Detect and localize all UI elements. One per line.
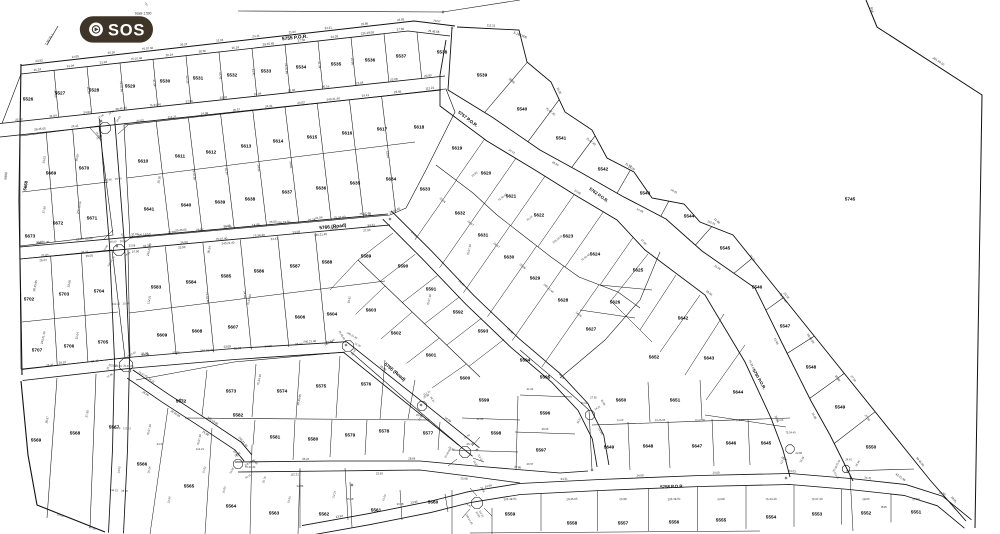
svg-text:5673: 5673 (25, 234, 36, 239)
svg-text:5998: 5998 (4, 172, 9, 180)
svg-text:23.08: 23.08 (223, 224, 231, 229)
svg-text:5624: 5624 (590, 252, 601, 257)
svg-text:5586: 5586 (254, 269, 265, 274)
svg-text:28.66: 28.66 (542, 427, 549, 431)
svg-text:5652: 5652 (649, 355, 660, 360)
svg-text:112.21: 112.21 (290, 472, 299, 476)
svg-text:5705: 5705 (98, 340, 109, 345)
svg-text:5549: 5549 (835, 405, 846, 410)
svg-text:23.08: 23.08 (223, 344, 231, 349)
svg-text:5593: 5593 (478, 329, 489, 334)
svg-text:5670: 5670 (79, 166, 90, 171)
svg-text:23.93: 23.93 (178, 245, 186, 250)
svg-text:5645: 5645 (761, 441, 772, 446)
svg-text:5618: 5618 (414, 125, 425, 130)
svg-text:75.34.40: 75.34.40 (785, 430, 796, 434)
svg-text:24.41: 24.41 (361, 93, 369, 98)
svg-text:5603: 5603 (366, 308, 377, 313)
svg-text:23.08: 23.08 (397, 502, 404, 506)
svg-text:5584: 5584 (186, 280, 197, 285)
svg-text:SOS: SOS (108, 21, 145, 39)
svg-text:5545: 5545 (720, 246, 731, 251)
svg-text:27.50: 27.50 (363, 228, 371, 233)
svg-text:5635: 5635 (350, 181, 361, 186)
svg-text:31.04: 31.04 (66, 63, 74, 68)
svg-text:23.93: 23.93 (219, 95, 227, 100)
svg-text:5600: 5600 (460, 376, 471, 381)
svg-text:23.93: 23.93 (15, 117, 23, 122)
svg-text:5529: 5529 (125, 84, 136, 89)
svg-text:226.19.50: 226.19.50 (667, 497, 680, 501)
svg-text:5581: 5581 (270, 435, 281, 440)
svg-text:5606: 5606 (295, 315, 306, 320)
svg-text:25.00: 25.00 (269, 219, 277, 224)
svg-text:5573: 5573 (226, 389, 237, 394)
svg-text:34.31: 34.31 (111, 488, 118, 492)
svg-text:23.08: 23.08 (717, 497, 725, 501)
svg-text:22.86: 22.86 (185, 99, 193, 104)
svg-text:14.09: 14.09 (71, 54, 79, 59)
svg-text:26.24: 26.24 (76, 237, 84, 242)
svg-text:5608: 5608 (192, 329, 203, 334)
svg-text:5541: 5541 (556, 136, 567, 141)
svg-text:5578: 5578 (379, 429, 390, 434)
svg-text:5528: 5528 (89, 88, 100, 93)
svg-text:24.03: 24.03 (136, 118, 144, 123)
svg-text:31.04: 31.04 (288, 88, 296, 93)
svg-text:21.04: 21.04 (527, 387, 534, 391)
svg-text:5607: 5607 (228, 325, 239, 330)
svg-text:14.09: 14.09 (200, 111, 208, 116)
svg-text:26.24: 26.24 (120, 239, 128, 244)
svg-text:5547: 5547 (780, 324, 791, 329)
svg-text:5568: 5568 (70, 431, 81, 436)
svg-text:28.66: 28.66 (198, 49, 206, 54)
svg-text:21.04: 21.04 (288, 30, 296, 35)
svg-text:5563: 5563 (269, 511, 280, 516)
svg-text:27.50: 27.50 (590, 395, 597, 399)
svg-text:31.04: 31.04 (99, 60, 107, 65)
svg-text:23.93: 23.93 (424, 73, 432, 78)
svg-text:5636: 5636 (316, 186, 327, 191)
svg-text:5537: 5537 (396, 54, 407, 59)
svg-text:5758 P.O.R.: 5758 P.O.R. (660, 484, 684, 490)
svg-text:5647: 5647 (692, 444, 703, 449)
svg-text:75.07.40: 75.07.40 (811, 497, 823, 501)
svg-text:5566: 5566 (137, 462, 148, 467)
svg-text:23.93: 23.93 (85, 236, 93, 241)
svg-text:5613: 5613 (241, 144, 252, 149)
svg-text:26.24: 26.24 (180, 42, 188, 47)
svg-text:5536: 5536 (365, 58, 376, 63)
svg-text:5530: 5530 (160, 79, 171, 84)
svg-text:5558: 5558 (567, 521, 578, 526)
svg-text:34.31: 34.31 (560, 477, 568, 481)
svg-text:5704: 5704 (94, 289, 105, 294)
svg-text:26.24: 26.24 (33, 67, 41, 72)
svg-text:5526: 5526 (23, 97, 34, 102)
svg-text:5642: 5642 (678, 316, 689, 321)
svg-text:21.04: 21.04 (356, 80, 364, 85)
svg-text:25.98: 25.98 (619, 497, 627, 501)
svg-text:14.09: 14.09 (252, 222, 260, 227)
svg-text:31.04: 31.04 (41, 253, 49, 258)
svg-text:5535: 5535 (331, 62, 342, 67)
svg-text:29.45.65: 29.45.65 (566, 497, 578, 501)
svg-text:14.09: 14.09 (712, 471, 720, 475)
svg-text:21.04: 21.04 (477, 417, 484, 421)
svg-text:23.08: 23.08 (129, 243, 136, 247)
svg-text:5595: 5595 (540, 375, 551, 380)
svg-text:5552: 5552 (861, 511, 872, 516)
svg-text:112.21: 112.21 (487, 23, 496, 27)
svg-text:26.24: 26.24 (295, 342, 303, 347)
svg-text:5610: 5610 (138, 159, 149, 164)
svg-text:14.09: 14.09 (636, 473, 644, 477)
svg-text:5650: 5650 (616, 398, 627, 403)
svg-text:5623: 5623 (563, 234, 574, 239)
svg-text:25.00: 25.00 (115, 176, 123, 181)
svg-text:27.50: 27.50 (132, 249, 140, 254)
svg-text:5597: 5597 (536, 448, 547, 453)
svg-text:5601: 5601 (426, 353, 437, 358)
svg-text:24.41: 24.41 (845, 458, 852, 462)
svg-text:5569: 5569 (31, 438, 42, 443)
svg-text:5544: 5544 (684, 214, 695, 219)
svg-text:5671: 5671 (87, 216, 98, 221)
svg-text:26.24: 26.24 (165, 52, 173, 57)
svg-text:5551: 5551 (911, 510, 922, 515)
svg-text:5609: 5609 (157, 333, 168, 338)
svg-text:5582: 5582 (233, 413, 244, 418)
svg-text:24.03: 24.03 (297, 100, 305, 105)
svg-text:23.93: 23.93 (397, 17, 405, 22)
svg-text:25.98: 25.98 (105, 177, 113, 182)
svg-text:5707: 5707 (32, 348, 43, 353)
svg-text:5554: 5554 (766, 515, 777, 520)
svg-text:14.09: 14.09 (114, 426, 121, 430)
svg-text:5580: 5580 (308, 437, 319, 442)
svg-text:24.03: 24.03 (83, 110, 91, 115)
svg-text:25.98: 25.98 (460, 476, 468, 481)
svg-text:24.41: 24.41 (91, 359, 99, 364)
svg-text:25.98: 25.98 (347, 497, 354, 501)
svg-text:5527: 5527 (55, 91, 66, 96)
svg-text:B16: B16 (881, 505, 887, 509)
svg-text:5575: 5575 (316, 384, 327, 389)
svg-text:5534: 5534 (296, 65, 307, 70)
svg-text:26.24: 26.24 (302, 457, 309, 461)
svg-text:5543: 5543 (640, 191, 651, 196)
svg-text:5591: 5591 (426, 287, 437, 292)
svg-text:5706: 5706 (64, 344, 75, 349)
svg-text:26.57: 26.57 (527, 462, 534, 466)
svg-text:112.21: 112.21 (736, 418, 745, 422)
svg-text:5565: 5565 (184, 484, 195, 489)
svg-text:5626: 5626 (610, 300, 621, 305)
svg-text:5559: 5559 (505, 512, 516, 517)
svg-text:14.09: 14.09 (264, 344, 272, 349)
svg-text:5616: 5616 (342, 131, 353, 136)
svg-text:5672: 5672 (53, 221, 64, 226)
svg-text:5598: 5598 (491, 431, 502, 436)
svg-text:26.57: 26.57 (196, 227, 204, 232)
svg-text:5556: 5556 (669, 520, 680, 525)
svg-text:112.21: 112.21 (112, 302, 121, 306)
svg-text:5587: 5587 (290, 264, 301, 269)
svg-text:5630: 5630 (504, 255, 515, 260)
svg-text:28.66: 28.66 (862, 497, 870, 501)
svg-text:5632: 5632 (455, 211, 466, 216)
svg-text:5637: 5637 (282, 190, 293, 195)
svg-text:25.16: 25.16 (322, 84, 330, 89)
svg-text:5564: 5564 (226, 504, 237, 509)
svg-text:5533: 5533 (261, 69, 272, 74)
svg-text:5557: 5557 (618, 521, 629, 526)
svg-text:5702: 5702 (24, 297, 35, 302)
svg-text:23.93: 23.93 (234, 346, 242, 351)
svg-text:23.93: 23.93 (35, 58, 43, 63)
svg-text:23.08: 23.08 (390, 77, 398, 82)
svg-text:5585: 5585 (221, 274, 232, 279)
svg-text:5592: 5592 (453, 310, 464, 315)
svg-text:23.93: 23.93 (376, 472, 383, 476)
svg-text:5633: 5633 (420, 187, 431, 192)
svg-text:5614: 5614 (273, 139, 284, 144)
svg-text:5590: 5590 (398, 264, 409, 269)
svg-text:22.86: 22.86 (514, 465, 522, 470)
svg-text:28.66: 28.66 (121, 489, 128, 493)
svg-text:14.09: 14.09 (617, 418, 624, 422)
svg-text:5531: 5531 (193, 76, 204, 81)
svg-text:31.04: 31.04 (49, 113, 57, 118)
svg-text:5611: 5611 (175, 154, 186, 159)
svg-text:5639: 5639 (215, 200, 226, 205)
svg-text:5542: 5542 (598, 167, 609, 172)
svg-text:226.19.50: 226.19.50 (503, 497, 516, 501)
svg-text:29.45.65: 29.45.65 (123, 364, 134, 368)
svg-text:5561: 5561 (371, 508, 382, 513)
svg-text:5562: 5562 (319, 512, 330, 517)
svg-text:5550: 5550 (866, 445, 877, 450)
svg-text:112.21: 112.21 (196, 447, 205, 451)
svg-text:5583: 5583 (151, 285, 162, 290)
svg-text:25.16: 25.16 (107, 50, 115, 55)
svg-text:31.04: 31.04 (317, 61, 322, 69)
svg-text:22.86: 22.86 (796, 451, 803, 455)
svg-text:5604: 5604 (327, 312, 338, 317)
svg-text:21.04: 21.04 (581, 401, 588, 405)
svg-text:29.45.65: 29.45.65 (655, 418, 666, 422)
svg-text:5627: 5627 (586, 327, 597, 332)
svg-text:25.00: 25.00 (86, 253, 94, 258)
svg-text:5596: 5596 (540, 411, 551, 416)
svg-text:24.41: 24.41 (252, 34, 260, 39)
svg-text:5651: 5651 (670, 398, 681, 403)
svg-text:5589: 5589 (361, 254, 372, 259)
svg-text:27.50: 27.50 (396, 27, 404, 32)
svg-text:5560: 5560 (428, 500, 439, 505)
svg-text:22.86: 22.86 (172, 350, 180, 355)
svg-text:5629: 5629 (530, 276, 541, 281)
svg-text:5539: 5539 (477, 73, 488, 78)
svg-text:34.31: 34.31 (157, 442, 164, 446)
svg-text:24.41: 24.41 (218, 72, 223, 80)
svg-text:25.00: 25.00 (110, 239, 118, 244)
svg-text:Scale 1:500: Scale 1:500 (135, 12, 152, 16)
svg-text:5641: 5641 (144, 207, 155, 212)
svg-text:5621: 5621 (506, 194, 517, 199)
svg-text:5625: 5625 (633, 268, 644, 273)
svg-text:5643: 5643 (704, 356, 715, 361)
svg-text:5631: 5631 (478, 233, 489, 238)
svg-text:5745: 5745 (845, 197, 856, 202)
svg-text:5579: 5579 (345, 433, 356, 438)
svg-text:21.04: 21.04 (115, 364, 122, 368)
svg-text:26.24: 26.24 (39, 258, 47, 263)
svg-text:26.24: 26.24 (231, 45, 239, 50)
svg-text:5615: 5615 (307, 135, 318, 140)
svg-text:24.41: 24.41 (251, 69, 256, 77)
svg-text:5553: 5553 (812, 512, 823, 517)
svg-text:5628: 5628 (558, 298, 569, 303)
svg-text:5619: 5619 (452, 146, 463, 151)
svg-text:5540: 5540 (517, 107, 528, 112)
svg-text:112.21: 112.21 (123, 426, 132, 430)
svg-text:21.04: 21.04 (315, 215, 323, 220)
svg-text:24.41: 24.41 (864, 476, 872, 481)
svg-text:31.04: 31.04 (152, 79, 157, 87)
svg-text:28.66: 28.66 (350, 58, 355, 66)
svg-text:5594: 5594 (520, 358, 531, 363)
svg-text:24.41: 24.41 (46, 363, 54, 368)
svg-text:24.03: 24.03 (180, 240, 188, 245)
svg-text:75.34.40: 75.34.40 (245, 465, 256, 469)
svg-text:5588: 5588 (322, 260, 333, 265)
svg-text:24.41: 24.41 (271, 236, 279, 241)
svg-text:240.21.40: 240.21.40 (303, 339, 316, 344)
svg-text:5703: 5703 (59, 292, 70, 297)
svg-text:24.41: 24.41 (71, 124, 79, 129)
svg-text:24.03: 24.03 (330, 34, 338, 39)
svg-text:21.04: 21.04 (216, 38, 224, 43)
svg-text:75.07.40: 75.07.40 (695, 418, 706, 422)
svg-text:31.04: 31.04 (254, 91, 262, 96)
svg-text:23.08: 23.08 (292, 230, 300, 235)
svg-text:5634: 5634 (386, 177, 397, 182)
svg-text:75.34.40: 75.34.40 (765, 497, 777, 501)
svg-text:5612: 5612 (206, 150, 217, 155)
svg-text:5532: 5532 (227, 73, 238, 78)
svg-text:5602: 5602 (391, 331, 402, 336)
svg-text:5669: 5669 (46, 171, 57, 176)
svg-text:23.93: 23.93 (394, 89, 402, 94)
svg-text:5638: 5638 (245, 197, 256, 202)
svg-text:5577: 5577 (423, 431, 434, 436)
svg-text:5649: 5649 (604, 445, 615, 450)
svg-text:24.03: 24.03 (788, 469, 796, 474)
svg-text:25.16: 25.16 (59, 360, 67, 365)
svg-text:5622: 5622 (534, 213, 545, 218)
svg-text:5646: 5646 (726, 441, 737, 446)
svg-text:34.31: 34.31 (324, 25, 332, 30)
svg-text:5548: 5548 (806, 365, 817, 370)
svg-text:5576: 5576 (361, 382, 372, 387)
svg-text:5648: 5648 (643, 444, 654, 449)
svg-text:27.50: 27.50 (912, 497, 920, 501)
svg-text:24.03: 24.03 (777, 418, 784, 422)
svg-text:25.98: 25.98 (141, 351, 149, 356)
svg-text:5538: 5538 (437, 50, 448, 55)
svg-text:5555: 5555 (716, 518, 727, 523)
svg-text:25.00: 25.00 (123, 301, 130, 305)
svg-text:5640: 5640 (181, 203, 192, 208)
svg-text:5644: 5644 (733, 390, 744, 395)
svg-text:5574: 5574 (277, 389, 288, 394)
svg-text:31.04: 31.04 (131, 232, 139, 237)
svg-text:5617: 5617 (377, 127, 388, 132)
svg-text:26.57: 26.57 (233, 107, 241, 112)
svg-text:5599: 5599 (479, 398, 490, 403)
svg-text:5620: 5620 (481, 171, 492, 176)
svg-text:5546: 5546 (752, 285, 763, 290)
svg-text:34.31: 34.31 (367, 223, 375, 228)
svg-text:22.86: 22.86 (361, 21, 369, 26)
svg-text:28.66: 28.66 (408, 457, 415, 461)
